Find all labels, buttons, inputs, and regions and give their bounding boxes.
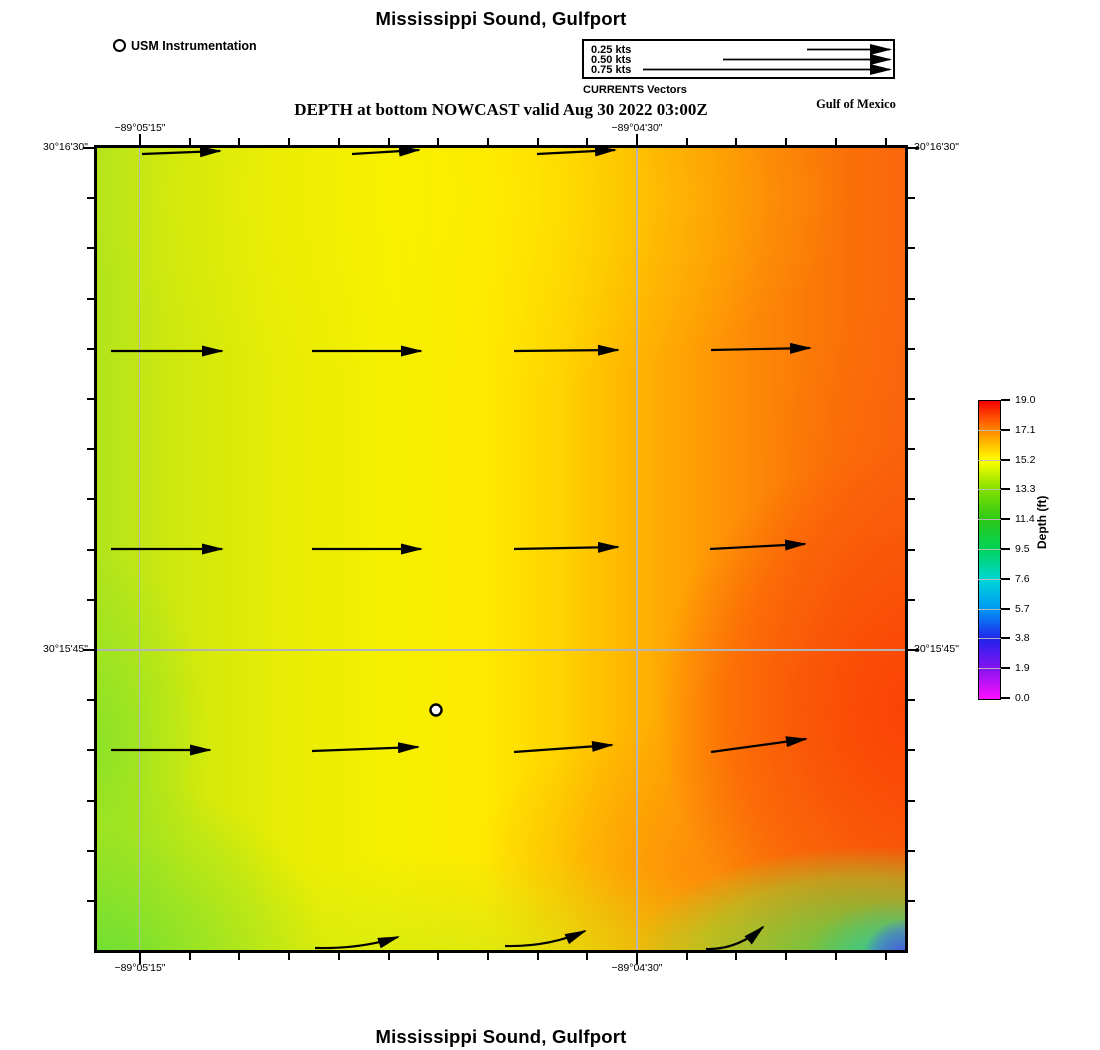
station-marker	[431, 705, 442, 716]
current-vector-arrow	[706, 927, 763, 949]
y-axis-tick	[908, 599, 915, 601]
x-axis-tick	[586, 138, 588, 145]
colorbar-tick-label: 3.8	[1015, 632, 1030, 644]
colorbar-tick	[1001, 518, 1010, 520]
lon-tick-label-bottom: −89°05'15"	[95, 962, 185, 974]
colorbar-divider	[978, 668, 1001, 669]
current-vector-arrow	[514, 745, 612, 752]
colorbar-tick-label: 7.6	[1015, 573, 1030, 585]
lat-tick-label-right: 30°16'30"	[914, 141, 990, 153]
colorbar-tick-label: 15.2	[1015, 454, 1035, 466]
current-vector-arrow	[142, 151, 220, 154]
y-axis-tick	[908, 247, 915, 249]
plot-subtitle: DEPTH at bottom NOWCAST valid Aug 30 202…	[97, 100, 905, 120]
colorbar-divider	[978, 519, 1001, 520]
x-axis-tick	[586, 953, 588, 960]
x-axis-tick	[885, 953, 887, 960]
x-axis-tick	[686, 138, 688, 145]
x-axis-tick	[238, 953, 240, 960]
x-axis-tick	[537, 138, 539, 145]
lat-tick-label-left: 30°15'45"	[12, 643, 88, 655]
y-axis-tick	[908, 850, 915, 852]
colorbar-tick	[1001, 399, 1010, 401]
y-axis-tick	[908, 398, 915, 400]
current-vector-arrow	[514, 547, 618, 549]
colorbar-label: Depth (ft)	[1035, 496, 1049, 549]
y-axis-tick	[908, 749, 915, 751]
lon-tick-label-top: −89°05'15"	[95, 122, 185, 134]
y-axis-tick	[908, 298, 915, 300]
colorbar-tick-label: 11.4	[1015, 513, 1035, 525]
legend-speed-label: 0.50 kts	[591, 55, 631, 65]
colorbar-tick	[1001, 429, 1010, 431]
y-axis-tick	[87, 348, 94, 350]
colorbar-tick	[1001, 488, 1010, 490]
x-axis-tick	[338, 953, 340, 960]
colorbar-tick	[1001, 697, 1010, 699]
current-vector-arrow	[505, 931, 585, 946]
colorbar-tick-label: 1.9	[1015, 662, 1030, 674]
y-axis-tick	[908, 900, 915, 902]
colorbar	[978, 400, 1001, 700]
colorbar-tick-label: 13.3	[1015, 483, 1035, 495]
colorbar-divider	[978, 609, 1001, 610]
current-vector-arrow	[312, 747, 418, 751]
x-axis-tick	[835, 953, 837, 960]
y-axis-tick	[908, 699, 915, 701]
x-axis-tick	[388, 953, 390, 960]
lat-tick-label-left: 30°16'30"	[12, 141, 88, 153]
x-axis-tick	[735, 953, 737, 960]
lon-tick-label-bottom: −89°04'30"	[592, 962, 682, 974]
legend-speed-label: 0.75 kts	[591, 65, 631, 75]
colorbar-divider	[978, 430, 1001, 431]
x-axis-tick	[288, 953, 290, 960]
x-axis-tick	[487, 138, 489, 145]
x-axis-tick	[686, 953, 688, 960]
current-vector-arrow	[537, 150, 615, 154]
current-vector-arrow	[711, 739, 806, 752]
x-axis-tick	[437, 953, 439, 960]
x-axis-tick	[388, 138, 390, 145]
colorbar-tick-label: 9.5	[1015, 543, 1030, 555]
y-axis-tick	[908, 498, 915, 500]
y-axis-tick	[87, 247, 94, 249]
y-axis-tick	[87, 699, 94, 701]
colorbar-tick	[1001, 667, 1010, 669]
y-axis-tick	[87, 448, 94, 450]
colorbar-tick	[1001, 578, 1010, 580]
legend-speed-label: 0.25 kts	[591, 45, 631, 55]
y-axis-tick	[908, 448, 915, 450]
y-axis-tick	[87, 900, 94, 902]
x-axis-tick	[288, 138, 290, 145]
colorbar-tick-label: 5.7	[1015, 603, 1030, 615]
x-axis-tick	[487, 953, 489, 960]
colorbar-divider	[978, 579, 1001, 580]
current-vector-arrow	[315, 937, 398, 948]
y-axis-tick	[87, 850, 94, 852]
y-axis-tick	[908, 348, 915, 350]
colorbar-tick	[1001, 548, 1010, 550]
y-axis-tick	[87, 197, 94, 199]
lon-tick-label-top: −89°04'30"	[592, 122, 682, 134]
x-axis-tick	[835, 138, 837, 145]
depth-field-map	[97, 148, 905, 950]
colorbar-tick-label: 19.0	[1015, 394, 1035, 406]
y-axis-tick	[908, 197, 915, 199]
current-vectors-overlay	[97, 148, 905, 950]
station-legend: USM Instrumentation	[113, 37, 257, 53]
colorbar-tick	[1001, 637, 1010, 639]
current-vector-arrow	[352, 150, 419, 154]
colorbar-divider	[978, 489, 1001, 490]
x-axis-tick	[785, 953, 787, 960]
currents-legend-caption: CURRENTS Vectors	[583, 84, 687, 96]
current-vector-arrow	[711, 348, 810, 350]
y-axis-tick	[908, 549, 915, 551]
x-axis-tick	[139, 134, 142, 145]
x-axis-tick	[437, 138, 439, 145]
colorbar-tick-label: 17.1	[1015, 424, 1035, 436]
colorbar-divider	[978, 638, 1001, 639]
x-axis-tick	[885, 138, 887, 145]
y-axis-tick	[87, 298, 94, 300]
station-circle-icon	[113, 39, 126, 52]
y-axis-tick	[87, 498, 94, 500]
nowcast-figure: Mississippi Sound, Gulfport USM Instrume…	[0, 0, 1100, 1050]
y-axis-tick	[87, 398, 94, 400]
x-axis-tick	[636, 134, 639, 145]
x-axis-tick	[189, 953, 191, 960]
x-axis-tick	[785, 138, 787, 145]
y-axis-tick	[87, 749, 94, 751]
x-axis-tick	[238, 138, 240, 145]
colorbar-tick	[1001, 608, 1010, 610]
x-axis-tick	[338, 138, 340, 145]
y-axis-tick	[908, 800, 915, 802]
y-axis-tick	[87, 800, 94, 802]
x-axis-tick	[735, 138, 737, 145]
y-axis-tick	[87, 599, 94, 601]
bottom-title: Mississippi Sound, Gulfport	[97, 1026, 905, 1048]
x-axis-tick	[537, 953, 539, 960]
station-legend-label: USM Instrumentation	[131, 39, 257, 53]
y-axis-tick	[87, 549, 94, 551]
current-vector-arrow	[514, 350, 618, 351]
colorbar-divider	[978, 460, 1001, 461]
page-title: Mississippi Sound, Gulfport	[97, 8, 905, 30]
region-label: Gulf of Mexico	[806, 97, 906, 112]
currents-legend-box: 0.25 kts0.50 kts0.75 kts	[582, 39, 895, 79]
current-vector-arrow	[710, 544, 805, 549]
colorbar-tick	[1001, 459, 1010, 461]
colorbar-divider	[978, 549, 1001, 550]
x-axis-tick	[189, 138, 191, 145]
colorbar-tick-label: 0.0	[1015, 692, 1030, 704]
